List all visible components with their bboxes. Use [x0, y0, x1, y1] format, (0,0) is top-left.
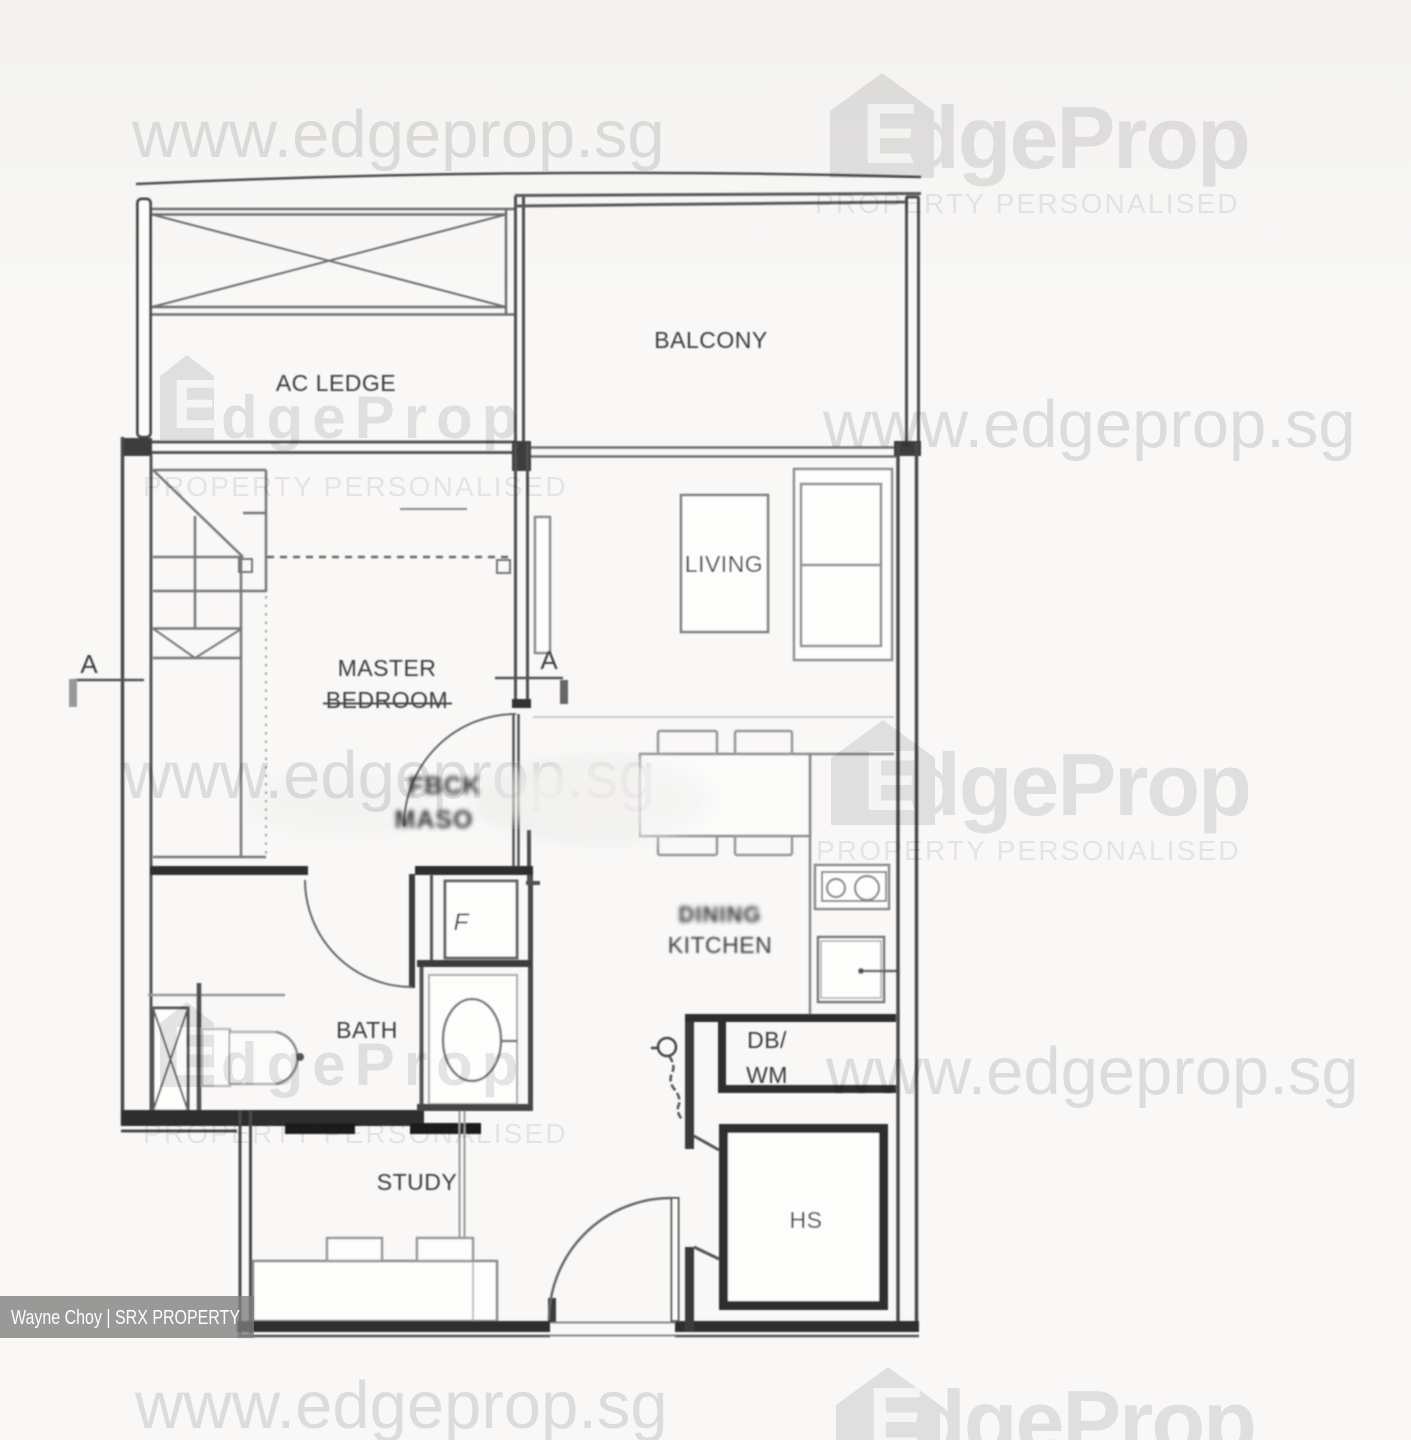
svg-text:dgeProp: dgeProp	[221, 1031, 527, 1098]
svg-text:BEDROOM: BEDROOM	[326, 687, 448, 713]
svg-text:E: E	[172, 1012, 219, 1090]
svg-text:www.edgeprop.sg: www.edgeprop.sg	[134, 1368, 668, 1440]
svg-text:DINING: DINING	[679, 902, 762, 927]
svg-text:dgeProp: dgeProp	[221, 384, 527, 451]
svg-text:DB/: DB/	[747, 1027, 787, 1053]
svg-text:PROPERTY PERSONALISED: PROPERTY PERSONALISED	[143, 471, 568, 502]
svg-text:WM: WM	[746, 1062, 788, 1088]
svg-text:LIVING: LIVING	[685, 551, 763, 577]
svg-text:KITCHEN: KITCHEN	[668, 932, 772, 958]
svg-text:A: A	[80, 649, 98, 679]
svg-text:dgeProp: dgeProp	[912, 1372, 1255, 1440]
svg-text:PROPERTY PERSONALISED: PROPERTY PERSONALISED	[143, 1118, 568, 1149]
svg-text:PROPERTY PERSONALISED: PROPERTY PERSONALISED	[816, 835, 1241, 866]
svg-text:HS: HS	[790, 1207, 823, 1233]
svg-text:STUDY: STUDY	[377, 1169, 457, 1195]
svg-text:dgeProp: dgeProp	[906, 88, 1249, 187]
svg-text:www.edgeprop.sg: www.edgeprop.sg	[131, 97, 665, 172]
svg-text:Wayne Choy | SRX PROPERTY: Wayne Choy | SRX PROPERTY	[11, 1307, 240, 1329]
svg-text:www.edgeprop.sg: www.edgeprop.sg	[825, 1034, 1359, 1109]
svg-text:www.edgeprop.sg: www.edgeprop.sg	[822, 387, 1356, 462]
svg-text:A: A	[540, 645, 558, 675]
svg-text:MASTER: MASTER	[338, 655, 437, 681]
svg-text:BALCONY: BALCONY	[654, 327, 767, 353]
svg-text:F: F	[454, 909, 470, 936]
svg-text:dgeProp: dgeProp	[907, 735, 1250, 834]
svg-text:PROPERTY PERSONALISED: PROPERTY PERSONALISED	[815, 188, 1240, 219]
svg-text:E: E	[172, 365, 219, 443]
